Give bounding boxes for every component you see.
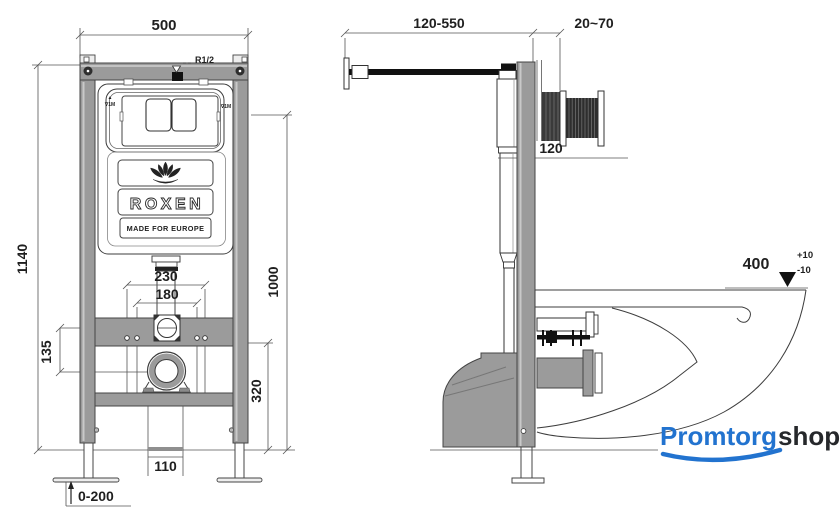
cistern-front: ▲ ∇1M ∇1M ROXEN MADE FOR EUROPE <box>98 79 233 254</box>
water-inlet-arm <box>344 58 516 89</box>
waste-outlet-connector <box>537 350 602 396</box>
level-mark-arrow: ▲ <box>108 95 113 101</box>
level-mark-right: ∇1M <box>221 104 231 110</box>
top-crossbar <box>80 55 248 80</box>
drain-socket <box>143 352 190 392</box>
promtorgshop-logo: Promtorg shop <box>660 421 840 460</box>
logo-swoosh <box>663 450 780 460</box>
dim-fixing-inner-label: 180 <box>155 286 179 302</box>
technical-drawing-page: 500 1140 1000 320 135 <box>0 0 840 525</box>
dim-leg-adjust-label: 0-200 <box>78 488 114 504</box>
dim-wall-thickness-label: 20~70 <box>574 15 614 31</box>
flush-button-left <box>146 99 171 131</box>
bracket-crossbar <box>95 315 233 346</box>
mounting-studs <box>537 330 590 346</box>
wall-section <box>537 60 604 146</box>
brand-tagline: MADE FOR EUROPE <box>127 224 205 233</box>
logo-text-secondary: shop <box>778 421 840 451</box>
inlet-thread-label: R1/2 <box>195 55 214 65</box>
dim-frame-depth-label: 120 <box>539 140 563 156</box>
front-view: 500 1140 1000 320 135 <box>14 17 295 506</box>
dim-bowl-tol-plus: +10 <box>797 250 813 261</box>
lower-crossbar <box>95 393 233 406</box>
dim-button-height-label: 1000 <box>265 266 281 297</box>
frame-rail-side <box>512 62 544 483</box>
dim-frame-width-label: 500 <box>151 17 176 34</box>
dim-frame-height: 1140 <box>14 61 84 454</box>
cistern-side <box>497 71 518 354</box>
dim-bowl-height-label: 400 <box>743 256 770 273</box>
drain-elbow <box>443 353 517 447</box>
flush-unit-shaft <box>560 91 604 146</box>
brand-name: ROXEN <box>130 196 204 213</box>
installation-frame-drawing: 500 1140 1000 320 135 <box>0 0 840 525</box>
dim-drain-offset-label: 135 <box>38 340 54 364</box>
dim-fixing-outer-label: 230 <box>154 268 178 284</box>
dim-frame-width: 500 <box>76 17 252 58</box>
dim-floor-outlet-label: 110 <box>154 458 177 474</box>
dim-drain-height-label: 320 <box>248 379 264 403</box>
dim-inlet-reach: 120-550 20~70 <box>341 15 614 90</box>
dim-bowl-height: 400 +10 -10 <box>725 250 813 288</box>
flush-button-right <box>172 99 196 131</box>
dim-inlet-reach-label: 120-550 <box>413 15 465 31</box>
flush-plate-housing: ▲ ∇1M ∇1M <box>105 89 231 152</box>
dim-leg-adjust: 0-200 <box>66 481 131 506</box>
dim-frame-height-label: 1140 <box>14 244 30 275</box>
level-mark-left: ∇1M <box>105 102 115 108</box>
dim-floor-outlet: 110 <box>148 406 183 476</box>
side-view: 120-550 20~70 <box>341 15 813 483</box>
tank-brand-panel: ROXEN MADE FOR EUROPE <box>108 152 226 246</box>
dim-bowl-tol-minus: -10 <box>797 265 811 276</box>
logo-text-primary: Promtorg <box>660 421 777 451</box>
